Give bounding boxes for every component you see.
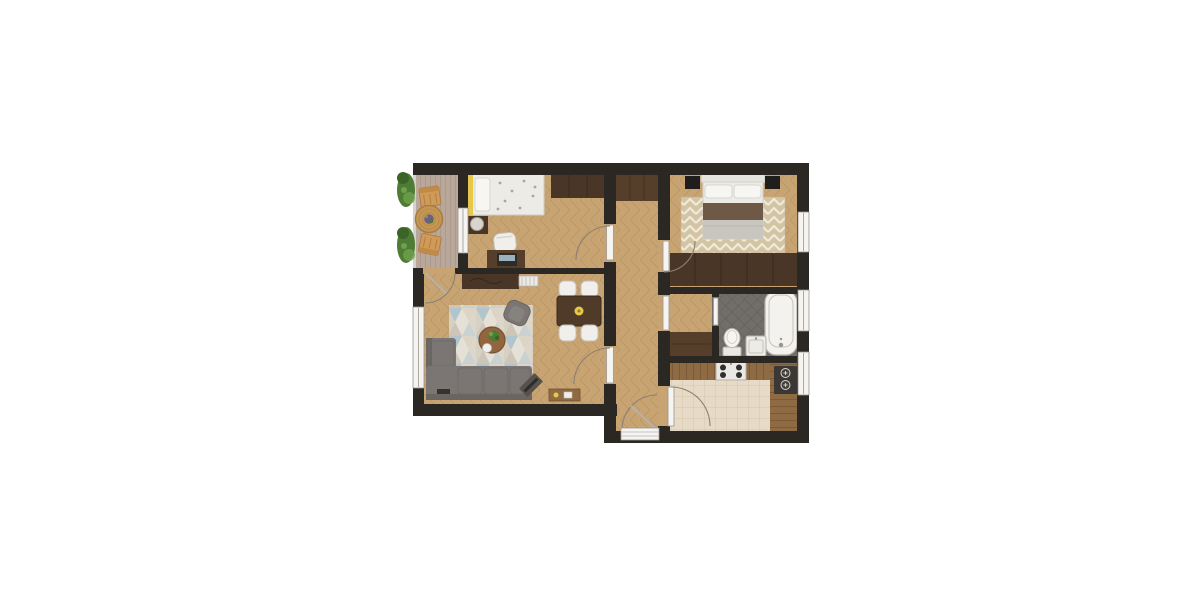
radiator (519, 276, 538, 286)
burner (720, 372, 726, 378)
washbasin (746, 336, 766, 356)
plant-leaf (425, 215, 428, 218)
bathtub (765, 291, 797, 355)
room-hallway (616, 174, 658, 201)
door-leaf-bathroom (714, 298, 719, 325)
stove-four-burner (716, 362, 746, 380)
garden-chair-bottom (418, 233, 442, 256)
window-master-bedroom (798, 212, 809, 252)
wardrobe-body (551, 174, 604, 198)
bed-blanket (703, 220, 763, 239)
tub-faucet (780, 338, 782, 340)
dining-chair (581, 281, 598, 297)
floor-plan (0, 0, 1200, 600)
tub-drain (779, 343, 783, 347)
hallway-floor (616, 174, 658, 431)
dining-chair (581, 325, 598, 341)
basin-faucet (755, 337, 757, 339)
floor-plan-canvas (0, 0, 1200, 600)
garden-chair-top (419, 186, 441, 208)
coffee-table (479, 327, 505, 353)
wardrobe-body (670, 253, 797, 286)
wall-bedroom-bath-divider (670, 287, 797, 294)
entrance-door-threshold (621, 428, 659, 440)
pillow (475, 178, 490, 211)
window-kitchen (798, 352, 809, 395)
laptop-screen (499, 255, 515, 261)
burner (736, 372, 742, 378)
burner (736, 365, 742, 371)
door-leaf-kitchen (668, 387, 674, 426)
bed-headboard (468, 174, 473, 215)
nightstand-left (685, 176, 700, 189)
desk-chair (493, 232, 517, 253)
room-vestibule (670, 332, 712, 356)
wall-bath-kitchen-divider (670, 356, 797, 363)
door-leaf-vestibule (663, 296, 669, 330)
plant-tuft (403, 192, 415, 204)
planter-box-top (397, 172, 415, 207)
toilet (723, 329, 741, 357)
wall-hallway-left (604, 163, 616, 443)
window-study-balcony (458, 208, 468, 253)
plant-tuft (397, 172, 409, 184)
dining-chair (559, 325, 576, 341)
wardrobe-master (670, 253, 797, 286)
plant-leaf (430, 220, 433, 223)
console-table (549, 389, 580, 401)
console-decor (554, 393, 559, 398)
single-bed (468, 174, 544, 215)
door-leaf-study (607, 225, 614, 260)
door-leaf-living (607, 347, 614, 383)
round-wicker-table (416, 206, 443, 233)
pillow (734, 185, 761, 198)
tray (483, 344, 492, 353)
console-frame (564, 392, 572, 398)
sideboard (462, 274, 519, 289)
sofa-back (426, 394, 532, 400)
double-bed (701, 174, 765, 239)
wall-bottom-left (413, 404, 617, 416)
plant-tuft (397, 227, 409, 239)
planter-box-bottom (397, 227, 415, 263)
dark-sink-unit (774, 366, 797, 394)
flower-center (578, 310, 581, 313)
sideboard-body (462, 274, 519, 289)
chair-seat (493, 232, 517, 253)
built-in-closet (616, 174, 658, 201)
burner (720, 365, 726, 371)
pillow (705, 185, 732, 198)
nightstand-right (765, 176, 780, 189)
desk (487, 250, 525, 268)
toilet-bowl (724, 329, 740, 348)
plant-tuft (401, 187, 407, 193)
dining-chair (559, 281, 576, 297)
door-leaf-master (663, 241, 669, 271)
door-opening-balcony (423, 268, 455, 274)
plant-leaf (495, 336, 499, 340)
toilet-tank (723, 347, 741, 356)
window-living (413, 307, 424, 388)
remote-control (437, 389, 450, 394)
wardrobe-study (551, 174, 604, 198)
table-lamp (471, 218, 484, 231)
plant-tuft (403, 249, 415, 261)
plant-tuft (401, 243, 407, 249)
window-bathroom (798, 290, 809, 331)
bed-throw (703, 203, 763, 220)
plant-leaf (489, 332, 493, 336)
